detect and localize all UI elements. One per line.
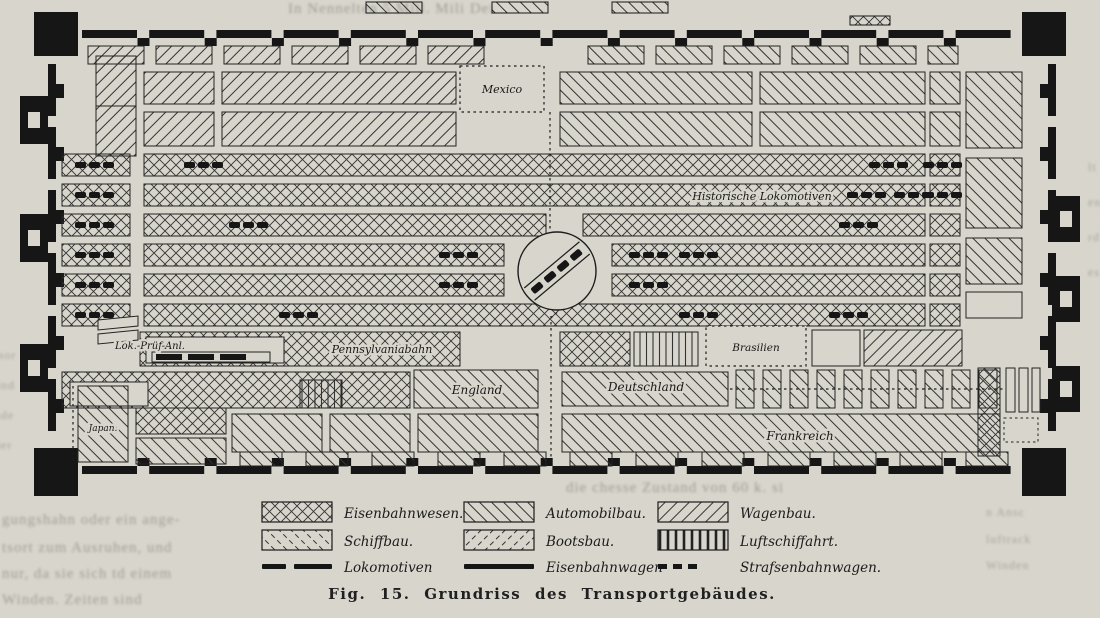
floor-plan-figure: Mexico Historische Lokomotiven Lok.-Prüf…: [0, 0, 1100, 618]
stall-block: [224, 46, 280, 64]
wall-segment: [687, 466, 742, 474]
wall-segment: [216, 466, 271, 474]
wall-pier: [406, 38, 418, 46]
wall-segment: [552, 30, 607, 38]
legend-line-dashed: [294, 564, 332, 569]
stall-block: [724, 46, 780, 64]
wall-segment: [485, 466, 540, 474]
stand-block: [844, 370, 862, 408]
legend-swatch-wagenbau: [658, 502, 728, 522]
tower-top-left: [34, 12, 78, 56]
hall-block: [330, 414, 410, 452]
wall-pier: [810, 38, 822, 46]
stall-block: [928, 46, 958, 64]
legend-label: Strafsenbahnwagen.: [740, 560, 881, 576]
railway-band: [144, 214, 546, 236]
stand-block: [736, 370, 754, 408]
stall-block: [702, 452, 744, 466]
wall-pier: [1040, 273, 1048, 287]
wall-segment: [687, 30, 742, 38]
hall-block: [760, 112, 925, 146]
roof-tab: [612, 2, 668, 13]
locomotive-symbol: [212, 162, 223, 168]
hall-block: [418, 414, 538, 452]
wall-segment: [351, 466, 406, 474]
locomotive-symbol: [657, 252, 668, 258]
locomotive-symbol: [829, 312, 840, 318]
wall-segment: [48, 64, 56, 116]
locomotive-symbol: [629, 252, 640, 258]
locomotive-symbol: [89, 252, 100, 258]
wall-pier: [675, 38, 687, 46]
wall-pier: [56, 336, 64, 350]
railway-band: [560, 332, 630, 366]
legend-line-dotted: [688, 564, 697, 569]
slat: [1032, 368, 1040, 412]
stall-block: [306, 452, 348, 466]
wall-pier: [1040, 399, 1048, 413]
legend-label: Wagenbau.: [740, 506, 816, 522]
locomotive-symbol: [89, 312, 100, 318]
hall-block: [232, 414, 322, 452]
locomotive-symbol: [75, 192, 86, 198]
legend-swatch-automobilbau: [464, 502, 534, 522]
wall-segment: [485, 30, 540, 38]
locomotive-symbol: [937, 192, 948, 198]
wall-pier: [1040, 336, 1048, 350]
locomotive-symbol: [103, 192, 114, 198]
locomotive-symbol: [867, 222, 878, 228]
locomotive-symbol: [923, 192, 934, 198]
wall-segment: [48, 190, 56, 242]
wall-segment: [956, 466, 1011, 474]
locomotive-symbol: [229, 222, 240, 228]
wall-segment: [1048, 64, 1056, 116]
railway-band: [144, 304, 925, 326]
locomotive-symbol: [857, 312, 868, 318]
wall-segment: [888, 466, 943, 474]
roof-tab: [850, 16, 890, 25]
locomotive-symbol: [467, 282, 478, 288]
locomotive-symbol: [657, 282, 668, 288]
pavilion-notch: [1060, 291, 1072, 307]
wall-pier: [272, 38, 284, 46]
legend-label: Eisenbahnwesen.: [343, 506, 463, 522]
legend: Eisenbahnwesen. Automobilbau. Wagenbau. …: [262, 502, 881, 576]
wall-pier: [877, 38, 889, 46]
hall-block: [812, 330, 860, 366]
legend-swatch-eisenbahnwesen: [262, 502, 332, 522]
hall-block: [966, 72, 1022, 148]
locomotive-symbol: [307, 312, 318, 318]
wall-pier: [56, 84, 64, 98]
locomotive-symbol: [843, 312, 854, 318]
wall-segment: [956, 30, 1011, 38]
railway-band: [930, 304, 960, 326]
locomotive-symbol: [897, 162, 908, 168]
roof-tab: [366, 2, 422, 13]
locomotive-symbol: [679, 252, 690, 258]
legend-label: Automobilbau.: [544, 506, 646, 522]
stall-block: [428, 46, 484, 64]
wall-pier: [742, 38, 754, 46]
stand-block: [790, 370, 808, 408]
locomotive-symbol: [188, 354, 214, 360]
locomotive-symbol: [453, 282, 464, 288]
hall-block: [144, 112, 214, 146]
wall-segment: [48, 316, 56, 368]
locomotive-symbol: [89, 162, 100, 168]
pavilion-notch: [28, 112, 40, 128]
railway-band: [930, 274, 960, 296]
airship-hall: [634, 332, 698, 366]
hall-block: [560, 112, 752, 146]
stall-block: [504, 452, 546, 466]
legend-swatch-bootsbau: [464, 530, 534, 550]
stall-block: [570, 452, 612, 466]
locomotive-symbol: [89, 192, 100, 198]
wall-segment: [888, 30, 943, 38]
hall-block: [222, 72, 456, 104]
wall-pier: [810, 458, 822, 466]
locomotive-symbol: [875, 192, 886, 198]
stand-block: [952, 370, 970, 408]
locomotive-symbol: [951, 192, 962, 198]
locomotive-symbol: [293, 312, 304, 318]
legend-line-solid: [464, 564, 534, 569]
pavilion-notch: [1060, 381, 1072, 397]
hall-block: [966, 292, 1022, 318]
label-lok-pruef-anl: Lok.-Prüf-Anl.: [114, 341, 185, 352]
wall-pier: [474, 38, 486, 46]
wall-segment: [821, 30, 876, 38]
locomotive-symbol: [103, 252, 114, 258]
wall-segment: [351, 30, 406, 38]
hall-block: [930, 72, 960, 104]
legend-label: Bootsbau.: [545, 534, 614, 550]
locomotive-symbol: [184, 162, 195, 168]
locomotive-symbol: [75, 162, 86, 168]
wall-pier: [1040, 147, 1048, 161]
legend-line-dashed: [262, 564, 286, 569]
railway-band: [136, 408, 226, 434]
wall-segment: [1048, 316, 1056, 368]
locomotive-symbol: [707, 252, 718, 258]
hall-block: [300, 380, 342, 408]
locomotive-symbol: [707, 312, 718, 318]
locomotive-symbol: [103, 312, 114, 318]
locomotive-symbol: [679, 312, 690, 318]
label-england: England: [451, 383, 503, 397]
roof-tab: [492, 2, 548, 13]
legend-label: Schiffbau.: [344, 534, 413, 550]
stall-block: [360, 46, 416, 64]
locomotive-symbol: [853, 222, 864, 228]
wall-segment: [284, 466, 339, 474]
hall-block: [560, 72, 752, 104]
hall-block: [136, 438, 226, 464]
stall-block: [792, 46, 848, 64]
wall-pier: [541, 38, 553, 46]
pavilion-notch: [1060, 211, 1072, 227]
stall-block: [656, 46, 712, 64]
wall-pier: [1040, 210, 1048, 224]
wall-segment: [418, 30, 473, 38]
locomotive-symbol: [869, 162, 880, 168]
tower-bottom-right: [1022, 448, 1066, 496]
top-edge-structures: [366, 2, 890, 25]
locomotive-symbol: [75, 252, 86, 258]
locomotive-symbol: [629, 282, 640, 288]
wall-pier: [944, 38, 956, 46]
wall-segment: [82, 30, 137, 38]
hall-block: [144, 72, 214, 104]
locomotive-symbol: [923, 162, 934, 168]
label-mexico: Mexico: [481, 83, 523, 96]
locomotive-symbol: [894, 192, 905, 198]
tower-top-right: [1022, 12, 1066, 56]
stall-block: [834, 452, 876, 466]
stand-block: [898, 370, 916, 408]
locomotive-symbol: [883, 162, 894, 168]
wall-segment: [754, 30, 809, 38]
wall-pier: [138, 38, 150, 46]
wall-segment: [821, 466, 876, 474]
legend-line-dotted: [658, 564, 667, 569]
locomotive-symbol: [693, 312, 704, 318]
stall-block: [860, 46, 916, 64]
locomotive-symbol: [937, 162, 948, 168]
stall-block: [588, 46, 644, 64]
scanned-book-page: { "figure": { "caption": "Fig. 15. Grund…: [0, 0, 1100, 618]
wall-pier: [877, 458, 889, 466]
wall-pier: [944, 458, 956, 466]
locomotive-symbol: [951, 162, 962, 168]
stall-block: [438, 452, 480, 466]
label-historische-lokomotiven: Historische Lokomotiven: [691, 190, 832, 203]
wall-segment: [620, 466, 675, 474]
stall-block: [292, 46, 348, 64]
turntable: [518, 232, 596, 310]
hall-block: [760, 72, 925, 104]
locomotive-symbol: [103, 282, 114, 288]
locomotive-symbol: [847, 192, 858, 198]
locomotive-symbol: [693, 252, 704, 258]
stall-block: [636, 452, 678, 466]
railway-band: [144, 154, 925, 176]
stall-block: [240, 452, 282, 466]
railway-band: [930, 244, 960, 266]
locomotive-symbol: [839, 222, 850, 228]
slat: [1019, 368, 1028, 412]
locomotive-symbol: [243, 222, 254, 228]
legend-label: Lokomotiven: [343, 560, 432, 576]
legend-line-dotted: [673, 564, 682, 569]
legend-swatch-luftschiffahrt: [658, 530, 728, 550]
locomotive-symbol: [103, 162, 114, 168]
pavilion-notch: [28, 230, 40, 246]
stall-block: [156, 46, 212, 64]
label-frankreich: Frankreich: [765, 429, 833, 443]
label-brasilien: Brasilien: [731, 342, 780, 354]
locomotive-symbol: [75, 282, 86, 288]
stall-block: [900, 452, 942, 466]
label-japan: Japan.: [87, 424, 118, 434]
locomotive-symbol: [156, 354, 182, 360]
locomotive-symbol: [279, 312, 290, 318]
hall-block: [222, 112, 456, 146]
wall-segment: [48, 379, 56, 431]
wall-segment: [620, 30, 675, 38]
wall-pier: [608, 38, 620, 46]
wall-segment: [149, 30, 204, 38]
wall-pier: [1040, 84, 1048, 98]
locomotive-symbol: [89, 222, 100, 228]
hall-block: [864, 330, 962, 366]
figure-caption: Fig. 15. Grundriss des Transportgebäudes…: [328, 585, 776, 603]
locomotive-symbol: [220, 354, 246, 360]
locomotive-symbol: [439, 282, 450, 288]
label-pennsylvaniabahn: Pennsylvaniabahn: [331, 343, 433, 356]
legend-label: Luftschiffahrt.: [739, 534, 838, 550]
hall-block: [930, 112, 960, 146]
locomotive-symbol: [439, 252, 450, 258]
label-deutschland: Deutschland: [607, 380, 685, 394]
tower-bottom-left: [34, 448, 78, 496]
dotted-box: [1004, 418, 1038, 442]
locomotive-symbol: [89, 282, 100, 288]
wall-segment: [149, 466, 204, 474]
wall-segment: [48, 127, 56, 179]
wall-pier: [205, 38, 217, 46]
locomotive-symbol: [198, 162, 209, 168]
wall-pier: [339, 38, 351, 46]
wall-segment: [48, 253, 56, 305]
stall-block: [372, 452, 414, 466]
legend-label: Eisenbahnwagen: [545, 560, 663, 576]
locomotive-symbol: [643, 252, 654, 258]
pavilion-notch: [28, 360, 40, 376]
locomotive-symbol: [257, 222, 268, 228]
locomotive-symbol: [75, 312, 86, 318]
wall-segment: [552, 466, 607, 474]
slat: [1006, 368, 1015, 412]
wall-segment: [1048, 127, 1056, 179]
wall-segment: [82, 466, 137, 474]
hall-block: [966, 238, 1022, 284]
locomotive-symbol: [103, 222, 114, 228]
locomotive-symbol: [861, 192, 872, 198]
locomotive-symbol: [908, 192, 919, 198]
wall-segment: [754, 466, 809, 474]
locomotive-symbol: [643, 282, 654, 288]
stall-block: [768, 452, 810, 466]
hall-block: [966, 158, 1022, 228]
wall-segment: [418, 466, 473, 474]
legend-swatch-schiffbau: [262, 530, 332, 550]
wall-segment: [216, 30, 271, 38]
locomotive-symbol: [453, 252, 464, 258]
railway-band: [930, 214, 960, 236]
locomotive-symbol: [467, 252, 478, 258]
wall-segment: [284, 30, 339, 38]
locomotive-symbol: [75, 222, 86, 228]
